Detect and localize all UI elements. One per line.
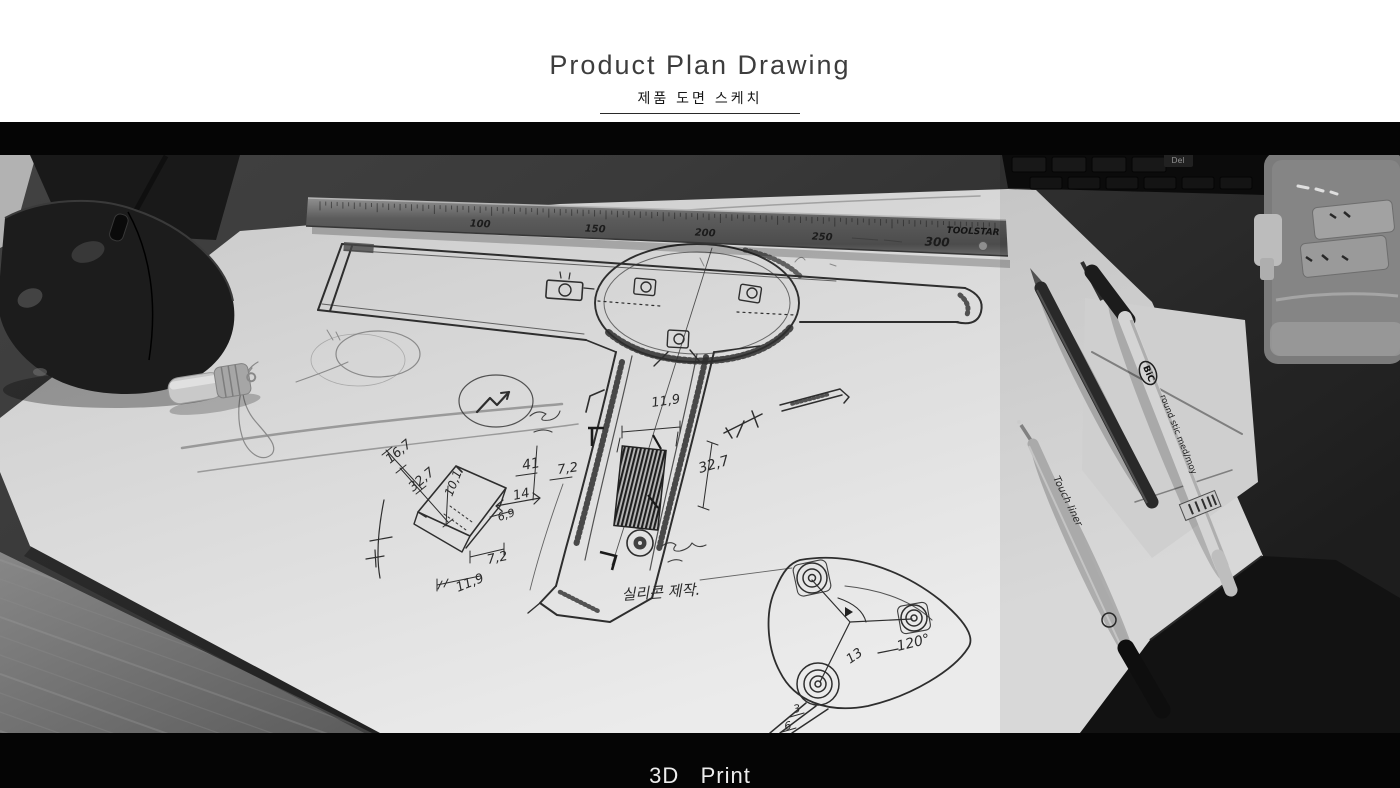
photo-canvas: Del [0,155,1400,733]
ruler-number: 150 [584,224,605,236]
footer-label: 3D Print [649,765,751,788]
page-subtitle: 제품 도면 스케치 [0,88,1400,108]
photo-desk-scene: Del [0,155,1400,733]
top-divider-bar [0,122,1400,155]
dim-label: 7,2 [556,460,579,478]
page-title: Product Plan Drawing [0,0,1400,81]
ruler-number: 200 [694,228,715,240]
ruler-number: 100 [469,219,490,231]
ruler-number: 300 [924,234,950,249]
subtitle-underline [600,113,800,114]
photo-vignette [1000,155,1400,733]
footer-bar: 3D Print [0,733,1400,788]
ruler-number: 250 [811,232,832,244]
sketch-inner-component [614,446,666,530]
presentation-slide: Product Plan Drawing 제품 도면 스케치 [0,0,1400,788]
header: Product Plan Drawing 제품 도면 스케치 [0,0,1400,122]
dim-label: 41 [521,455,541,474]
ruler-hole [979,242,988,251]
